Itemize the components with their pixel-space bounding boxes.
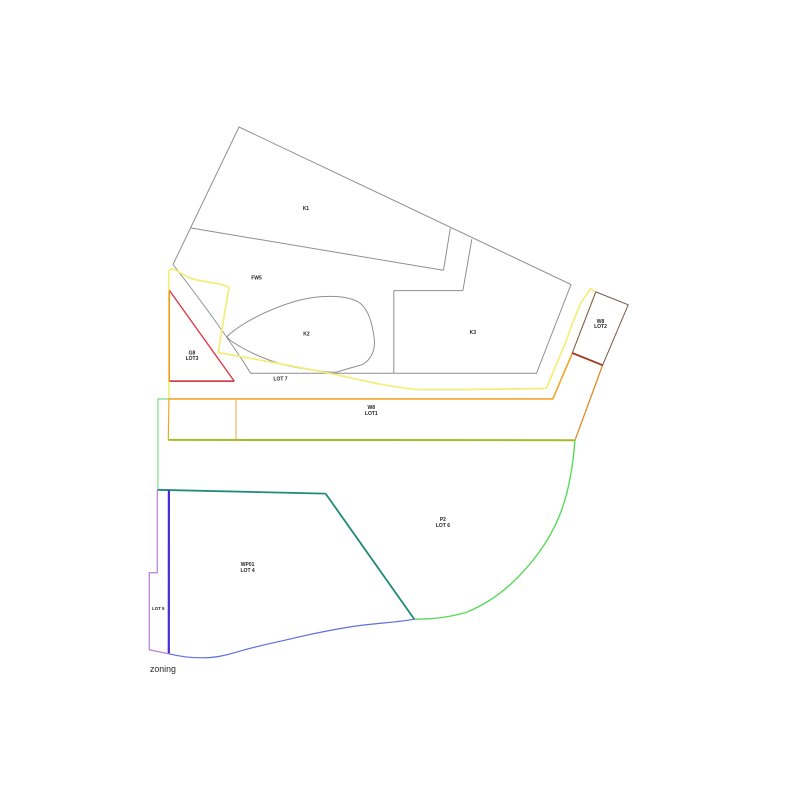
svg-text:LOT 7: LOT 7 [273,377,287,383]
svg-text:LOT2: LOT2 [594,324,607,330]
svg-text:LOT1: LOT1 [365,411,378,417]
svg-text:LOT 6: LOT 6 [436,523,450,529]
svg-text:K3: K3 [470,330,477,336]
svg-text:K1: K1 [303,206,310,212]
svg-text:zoning: zoning [150,664,176,674]
svg-text:LOT 5: LOT 5 [152,606,165,611]
svg-text:LOT3: LOT3 [186,356,199,362]
svg-text:K2: K2 [303,331,310,337]
svg-text:FW5: FW5 [251,275,262,281]
svg-text:LOT 4: LOT 4 [241,568,255,574]
